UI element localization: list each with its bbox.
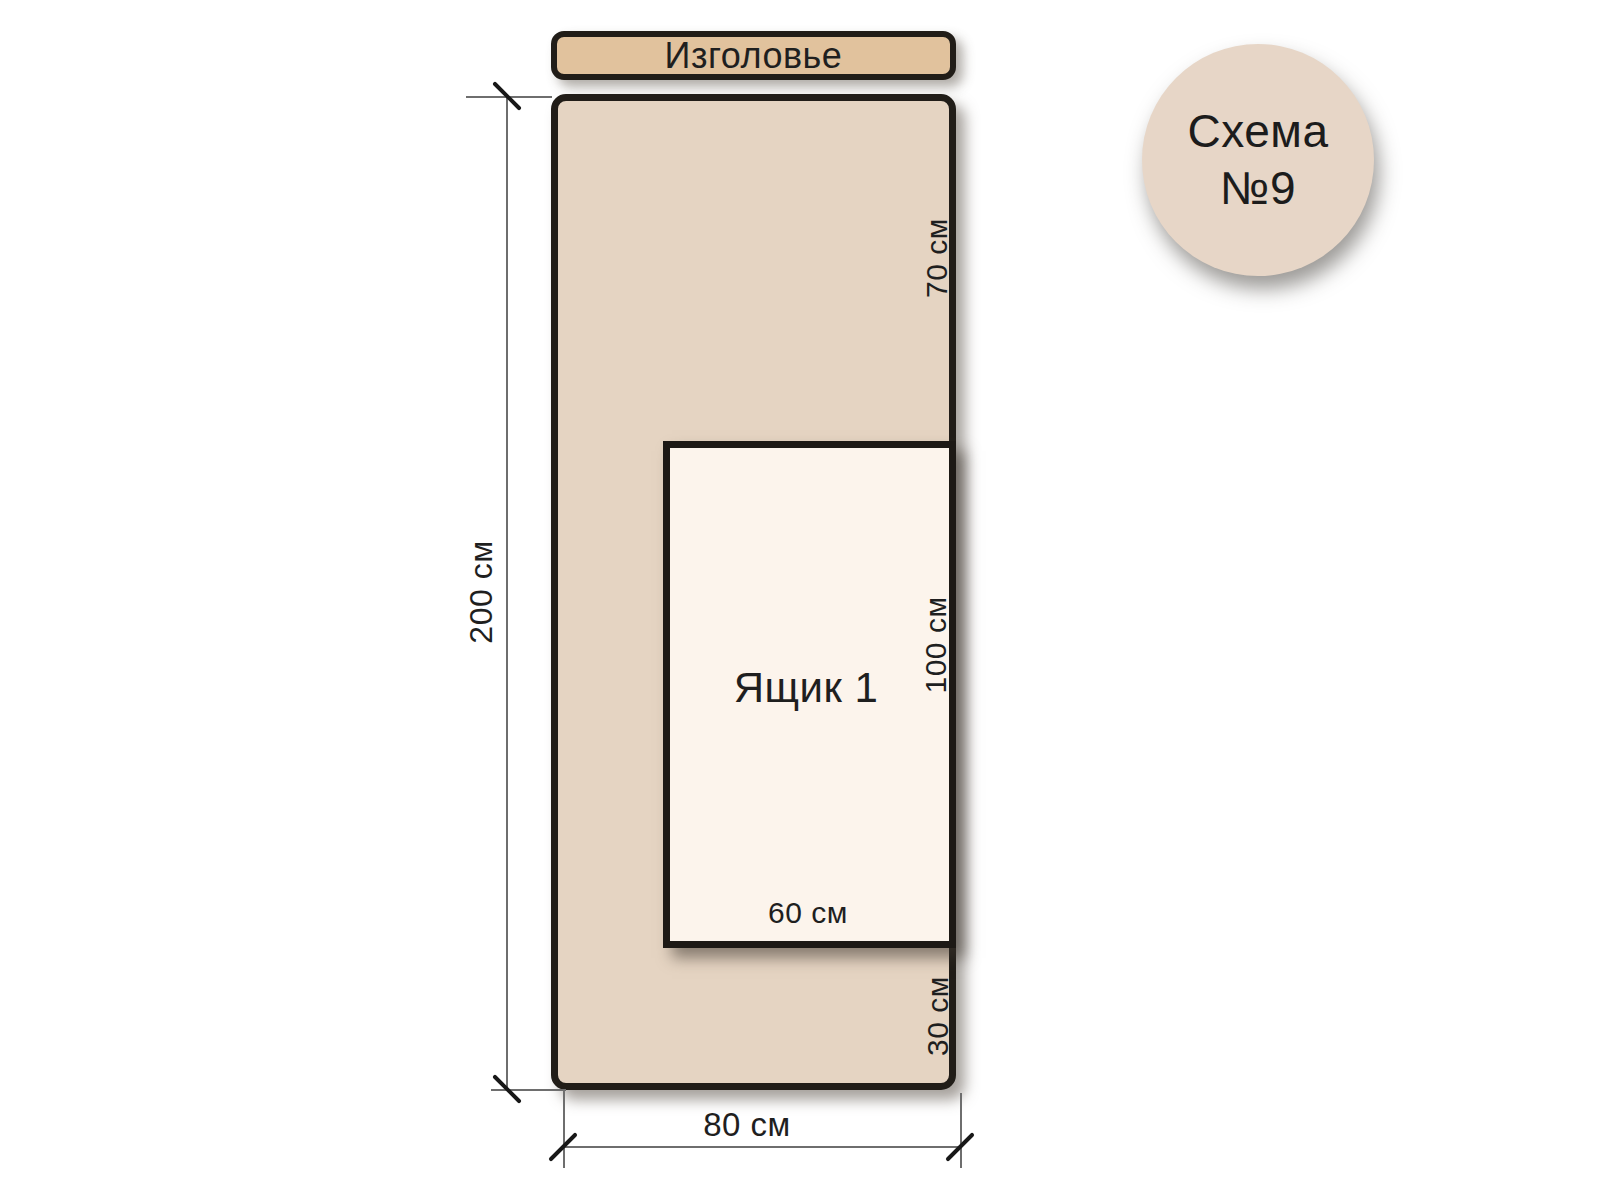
height-tick-top: [492, 81, 522, 111]
diagram-canvas: Изголовье 70 см 30 см Ящик 1 100 см 60 с…: [0, 0, 1600, 1200]
width-extension-line-right: [960, 1093, 962, 1168]
bed-lower-section-label: 30 см: [923, 976, 953, 1056]
drawer-width-label: 60 см: [768, 898, 848, 928]
height-extension-line-top: [466, 96, 552, 98]
width-dimension-line: [563, 1146, 961, 1148]
schema-badge-title: Схема: [1188, 103, 1329, 161]
width-extension-line-left: [563, 1090, 565, 1168]
headboard: Изголовье: [551, 31, 956, 80]
drawer-label: Ящик 1: [734, 664, 879, 712]
schema-badge: Схема №9: [1142, 44, 1374, 276]
bed-upper-section-label: 70 см: [922, 218, 952, 298]
height-tick-bottom: [492, 1074, 522, 1104]
width-tick-left: [548, 1132, 578, 1162]
bed-height-label: 200 см: [465, 540, 497, 643]
schema-badge-number: №9: [1220, 160, 1296, 218]
height-extension-line-bottom: [491, 1089, 566, 1091]
drawer-height-label: 100 см: [921, 596, 951, 693]
height-dimension-line: [506, 96, 508, 1090]
bed-width-label: 80 см: [703, 1108, 791, 1141]
drawer-1: Ящик 1 100 см 60 см: [663, 441, 956, 948]
width-tick-right: [945, 1132, 975, 1162]
headboard-label: Изголовье: [665, 38, 843, 74]
